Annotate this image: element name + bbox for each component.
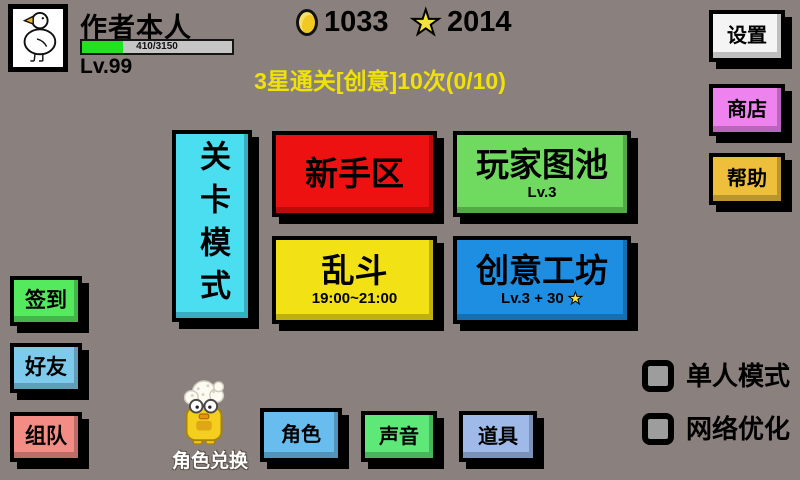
level-mode-button[interactable]: 关卡模式 [172, 130, 252, 322]
brawl-label: 乱斗 [322, 253, 388, 289]
player-map-pool-button[interactable]: 玩家图池 Lv.3 [453, 131, 631, 217]
daily-mission-text: 3星通关[创意]10次(0/10) [0, 62, 760, 96]
creative-workshop-level: Lv.3 + 30 ★ [501, 291, 583, 308]
currency-bar: 1033 ★ 2014 [296, 6, 512, 39]
checkbox-icon[interactable] [642, 413, 674, 445]
single-player-mode-label: 单人模式 [686, 360, 790, 392]
check-in-button[interactable]: 签到 [10, 276, 82, 326]
single-player-mode-toggle[interactable]: 单人模式 [642, 360, 790, 392]
team-up-button[interactable]: 组队 [10, 412, 82, 462]
level-mode-label: 关卡模式 [195, 140, 229, 312]
props-button[interactable]: 道具 [459, 411, 537, 462]
settings-button[interactable]: 设置 [709, 10, 785, 62]
newbie-zone-button[interactable]: 新手区 [272, 131, 437, 217]
exp-text: 410/3150 [82, 41, 232, 53]
exp-bar: 410/3150 [80, 39, 234, 55]
brawl-time-window: 19:00~21:00 [312, 291, 398, 308]
player-map-pool-label: 玩家图池 [476, 147, 608, 183]
coin-icon [296, 9, 318, 36]
help-button-label: 帮助 [727, 168, 767, 190]
sound-button-label: 声音 [379, 426, 419, 448]
game-lobby-screen: 作者本人 410/3150 Lv.99 1033 ★ 2014 3星通关[创意]… [0, 0, 800, 480]
props-button-label: 道具 [478, 426, 518, 448]
team-up-label: 组队 [25, 425, 67, 448]
check-in-label: 签到 [25, 289, 67, 312]
player-map-pool-level: Lv.3 [528, 185, 557, 202]
friends-button[interactable]: 好友 [10, 343, 82, 393]
character-exchange-mascot[interactable] [178, 380, 230, 451]
star-icon: ★ [568, 291, 583, 307]
shop-button[interactable]: 商店 [709, 84, 785, 136]
brawl-button[interactable]: 乱斗 19:00~21:00 [272, 236, 437, 324]
newbie-zone-label: 新手区 [305, 156, 404, 192]
checkbox-icon[interactable] [642, 360, 674, 392]
creative-workshop-button[interactable]: 创意工坊 Lv.3 + 30 ★ [453, 236, 631, 324]
network-optimization-label: 网络优化 [686, 413, 790, 445]
sound-button[interactable]: 声音 [361, 411, 437, 462]
friends-label: 好友 [25, 356, 67, 379]
network-optimization-toggle[interactable]: 网络优化 [642, 413, 790, 445]
help-button[interactable]: 帮助 [709, 153, 785, 205]
character-button-label: 角色 [281, 424, 321, 446]
settings-button-label: 设置 [727, 25, 767, 47]
star-count: 2014 [447, 6, 512, 39]
star-icon: ★ [411, 8, 441, 38]
creative-workshop-level-text: Lv.3 + 30 [501, 291, 564, 308]
creative-workshop-label: 创意工坊 [476, 253, 608, 289]
character-button[interactable]: 角色 [260, 408, 342, 462]
shop-button-label: 商店 [727, 99, 767, 121]
goose-avatar-icon [14, 8, 62, 69]
coin-count: 1033 [324, 6, 389, 39]
character-exchange-label: 角色兑换 [162, 446, 258, 473]
